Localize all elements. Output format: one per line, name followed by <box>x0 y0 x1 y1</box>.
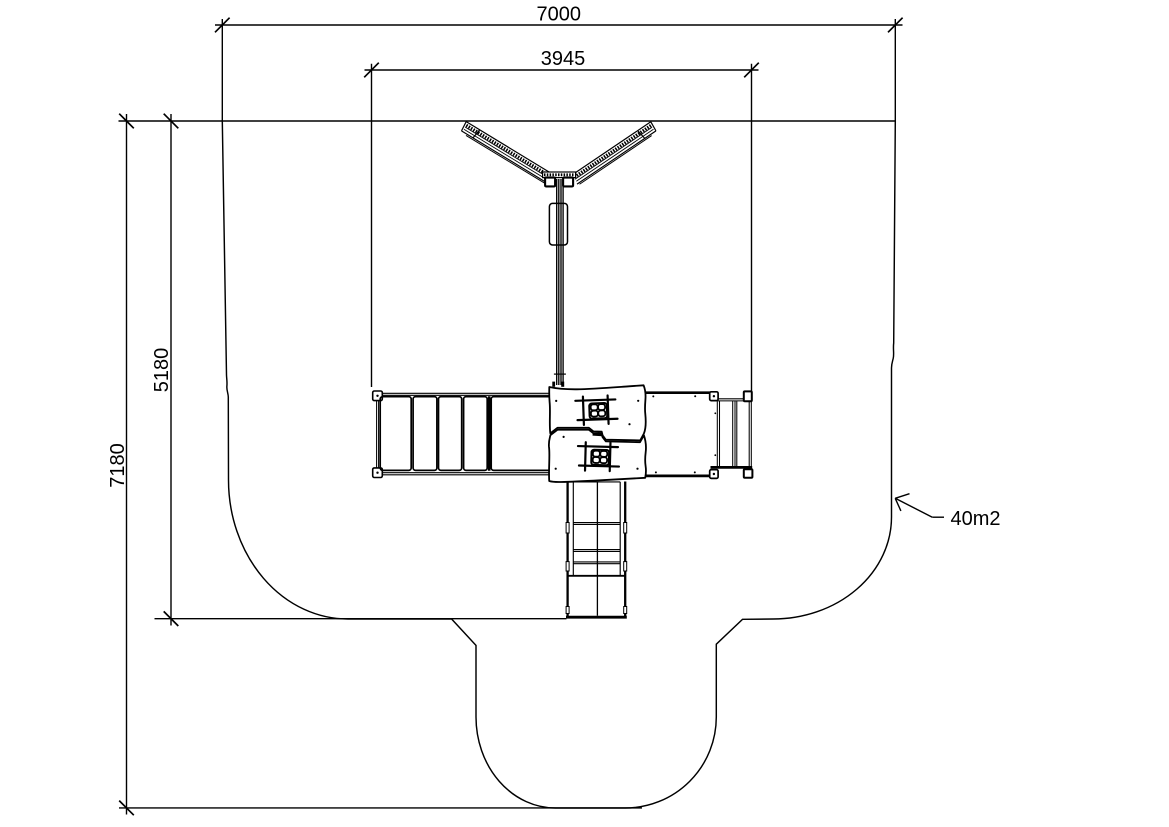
svg-text:5180: 5180 <box>151 348 173 393</box>
svg-text:40m2: 40m2 <box>951 508 1001 530</box>
svg-text:7000: 7000 <box>537 3 582 25</box>
svg-text:7180: 7180 <box>107 443 129 488</box>
svg-text:3945: 3945 <box>541 48 586 70</box>
